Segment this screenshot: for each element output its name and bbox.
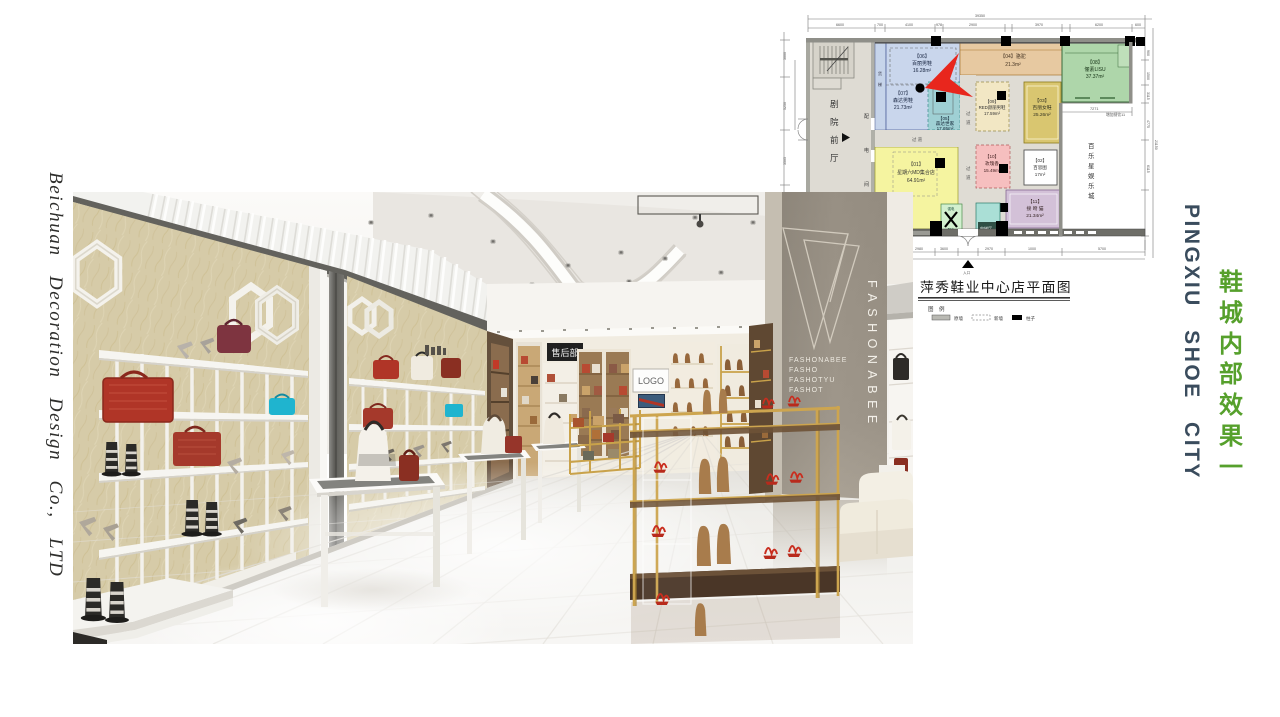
svg-text:星: 星 [1088, 162, 1094, 170]
svg-text:【03】: 【03】 [1035, 98, 1050, 104]
svg-text:道: 道 [966, 174, 971, 181]
svg-text:21150: 21150 [1154, 140, 1158, 150]
svg-text:星期六MD集合店: 星期六MD集合店 [897, 169, 935, 176]
svg-text:5700: 5700 [1098, 247, 1106, 251]
svg-text:17m²: 17m² [1035, 172, 1046, 177]
svg-text:LOGO: LOGO [638, 376, 664, 386]
svg-text:配: 配 [864, 114, 869, 120]
svg-text:【07】: 【07】 [895, 91, 911, 97]
svg-text:3970: 3970 [1035, 23, 1043, 27]
svg-text:柱子: 柱子 [1026, 315, 1035, 322]
svg-text:【02】: 【02】 [1033, 158, 1047, 163]
svg-text:电: 电 [864, 147, 869, 154]
svg-text:5250: 5250 [783, 102, 787, 110]
svg-text:25.26m²: 25.26m² [1033, 112, 1051, 118]
svg-text:乐: 乐 [1088, 181, 1095, 190]
svg-text:强电: 强电 [948, 206, 955, 211]
svg-text:3600: 3600 [940, 247, 948, 251]
svg-text:900: 900 [1146, 50, 1150, 56]
svg-text:萍秀鞋业中心店平面图: 萍秀鞋业中心店平面图 [920, 280, 1072, 295]
svg-text:过 道: 过 道 [912, 136, 923, 143]
svg-text:4100: 4100 [905, 23, 913, 27]
svg-text:15.49m²: 15.49m² [984, 168, 1001, 173]
svg-text:1500: 1500 [1146, 72, 1150, 80]
svg-text:FASHONABEE: FASHONABEE [865, 280, 879, 430]
svg-text:FASHOTYU: FASHOTYU [789, 377, 836, 384]
svg-text:6115: 6115 [1146, 165, 1150, 173]
svg-text:2970: 2970 [985, 247, 993, 251]
svg-text:21.73m²: 21.73m² [894, 105, 913, 111]
svg-text:【08】: 【08】 [1087, 60, 1103, 66]
svg-text:乐: 乐 [1088, 151, 1095, 160]
svg-text:700: 700 [877, 23, 883, 27]
svg-text:剧: 剧 [830, 99, 839, 109]
svg-text:978: 978 [936, 23, 942, 27]
svg-text:2980: 2980 [915, 247, 923, 251]
svg-text:17.59m²: 17.59m² [984, 111, 1001, 116]
svg-text:【10】: 【10】 [985, 154, 999, 159]
svg-text:森达男鞋: 森达男鞋 [893, 97, 913, 104]
svg-text:【11】: 【11】 [1028, 199, 1043, 205]
svg-text:21.3m²: 21.3m² [1005, 62, 1021, 68]
svg-text:21.34m²: 21.34m² [1026, 213, 1044, 219]
svg-text:FASHOT: FASHOT [789, 387, 824, 394]
svg-text:【06】: 【06】 [914, 54, 930, 60]
svg-text:厅: 厅 [830, 153, 839, 163]
svg-text:娱: 娱 [1088, 171, 1095, 180]
svg-text:增加餐饮11: 增加餐饮11 [1106, 112, 1125, 117]
svg-text:16.28m²: 16.28m² [913, 68, 932, 74]
svg-text:图 例: 图 例 [928, 305, 947, 313]
svg-text:城: 城 [1088, 192, 1095, 200]
svg-text:2900: 2900 [969, 23, 977, 27]
svg-text:39350: 39350 [975, 14, 985, 18]
svg-text:院: 院 [830, 117, 839, 127]
svg-text:入口: 入口 [963, 270, 971, 275]
svg-text:过: 过 [966, 110, 971, 117]
svg-text:【09】: 【09】 [985, 99, 999, 104]
svg-text:过: 过 [966, 165, 971, 172]
svg-text:7271: 7271 [1090, 107, 1098, 111]
svg-text:百丽女鞋: 百丽女鞋 [1032, 104, 1051, 111]
svg-text:货: 货 [878, 70, 882, 76]
svg-text:百: 百 [1088, 142, 1094, 150]
svg-text:梯: 梯 [878, 81, 882, 87]
svg-text:原墙: 原墙 [954, 315, 963, 322]
svg-text:玫瑰香: 玫瑰香 [985, 160, 999, 167]
svg-text:间: 间 [864, 181, 869, 188]
svg-text:3505: 3505 [783, 157, 787, 165]
svg-text:RED颜丽男鞋: RED颜丽男鞋 [979, 104, 1006, 111]
svg-text:1000: 1000 [1028, 247, 1036, 251]
svg-text:【01】: 【01】 [908, 162, 924, 168]
svg-text:3115: 3115 [1146, 92, 1150, 100]
svg-text:道: 道 [966, 119, 971, 126]
svg-text:FASHO: FASHO [789, 367, 818, 374]
svg-text:3000: 3000 [783, 52, 787, 60]
svg-text:俪素LISU: 俪素LISU [1084, 66, 1106, 73]
svg-text:37.37m²: 37.37m² [1086, 74, 1105, 80]
svg-text:【04】骆驼: 【04】骆驼 [1000, 53, 1026, 60]
svg-text:6600: 6600 [836, 23, 844, 27]
svg-text:百丽男鞋: 百丽男鞋 [912, 60, 932, 67]
svg-text:FASHONABEE: FASHONABEE [789, 357, 847, 364]
svg-text:4775: 4775 [1146, 120, 1150, 128]
svg-text:前: 前 [830, 135, 839, 145]
svg-text:售后部: 售后部 [551, 347, 578, 358]
svg-text:6200: 6200 [1095, 23, 1103, 27]
svg-text:接 吻 猫: 接 吻 猫 [1026, 205, 1043, 212]
svg-text:64.91m²: 64.91m² [907, 178, 926, 184]
svg-text:新墙: 新墙 [994, 315, 1003, 322]
svg-text:600: 600 [1135, 23, 1141, 27]
